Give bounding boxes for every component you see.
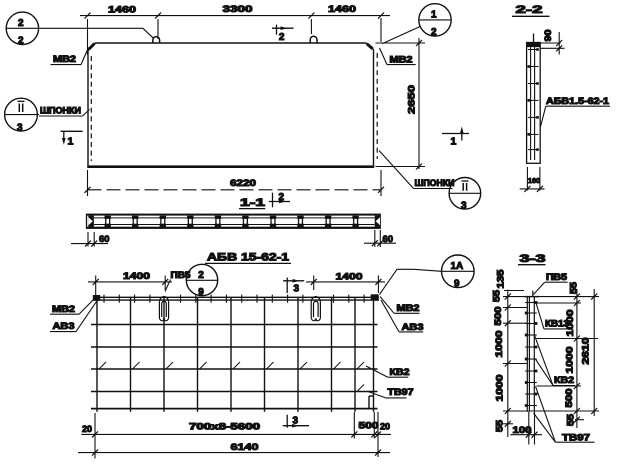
svg-text:700x8-5600: 700x8-5600 — [189, 421, 260, 431]
svg-text:135: 135 — [496, 269, 506, 288]
svg-text:2: 2 — [18, 36, 24, 47]
svg-text:3-3: 3-3 — [520, 253, 546, 265]
svg-text:100: 100 — [513, 425, 532, 435]
svg-text:1: 1 — [68, 136, 74, 148]
svg-text:2: 2 — [18, 18, 24, 29]
svg-text:МВ2: МВ2 — [52, 304, 75, 314]
svg-text:АВ3: АВ3 — [402, 322, 424, 332]
svg-text:АБВ 15-62-1: АБВ 15-62-1 — [207, 252, 289, 264]
svg-text:2650: 2650 — [407, 85, 418, 114]
svg-text:3300: 3300 — [223, 4, 253, 15]
svg-text:АБВ1.5-62-1: АБВ1.5-62-1 — [546, 96, 609, 106]
svg-text:1-1: 1-1 — [240, 197, 265, 209]
svg-text:1460: 1460 — [108, 5, 136, 16]
svg-text:2: 2 — [279, 192, 285, 203]
svg-text:1000: 1000 — [494, 330, 504, 357]
svg-text:500: 500 — [359, 420, 379, 430]
svg-text:1400: 1400 — [336, 271, 363, 282]
svg-text:6140: 6140 — [231, 442, 259, 453]
svg-text:9: 9 — [454, 278, 460, 289]
svg-text:500: 500 — [493, 306, 503, 325]
svg-text:20: 20 — [82, 424, 92, 434]
svg-text:3: 3 — [461, 201, 467, 212]
svg-text:МВ2: МВ2 — [390, 54, 413, 64]
svg-text:3: 3 — [294, 283, 300, 294]
svg-text:1А: 1А — [451, 261, 464, 272]
svg-text:2610: 2610 — [581, 337, 591, 364]
svg-text:КВ2: КВ2 — [390, 367, 410, 377]
svg-text:160: 160 — [528, 176, 540, 185]
svg-text:ТВ97: ТВ97 — [562, 432, 590, 442]
svg-text:55: 55 — [495, 420, 505, 432]
svg-text:1: 1 — [451, 136, 457, 148]
svg-text:АВ3: АВ3 — [53, 321, 75, 331]
svg-text:ПВ5: ПВ5 — [546, 272, 567, 282]
svg-text:55: 55 — [569, 282, 579, 294]
svg-text:1: 1 — [431, 9, 437, 20]
svg-text:90: 90 — [543, 29, 553, 41]
svg-text:3: 3 — [293, 415, 299, 426]
svg-text:МВ2: МВ2 — [397, 303, 420, 313]
svg-text:9: 9 — [198, 287, 204, 298]
svg-text:1000: 1000 — [565, 346, 575, 373]
svg-text:3: 3 — [17, 123, 23, 134]
svg-text:55: 55 — [491, 290, 501, 302]
svg-text:МВ2: МВ2 — [53, 54, 76, 64]
svg-text:60: 60 — [383, 234, 394, 245]
svg-text:2-2: 2-2 — [516, 4, 543, 16]
svg-text:1000: 1000 — [495, 374, 505, 401]
svg-text:1400: 1400 — [123, 271, 150, 282]
svg-text:60: 60 — [99, 234, 110, 245]
svg-text:20: 20 — [380, 421, 390, 431]
svg-text:2: 2 — [279, 32, 285, 43]
svg-text:2: 2 — [431, 27, 437, 38]
svg-text:2: 2 — [198, 270, 204, 281]
svg-text:1460: 1460 — [328, 4, 356, 15]
svg-text:6220: 6220 — [230, 178, 256, 189]
svg-text:55: 55 — [566, 414, 576, 426]
svg-text:ШПОНКИ: ШПОНКИ — [40, 106, 81, 116]
svg-text:КВ2: КВ2 — [554, 375, 574, 385]
svg-text:500: 500 — [564, 388, 574, 407]
svg-text:ШПОНКИ: ШПОНКИ — [415, 178, 455, 188]
svg-text:КВ13: КВ13 — [545, 318, 569, 328]
svg-text:ТВ97: ТВ97 — [388, 387, 414, 397]
